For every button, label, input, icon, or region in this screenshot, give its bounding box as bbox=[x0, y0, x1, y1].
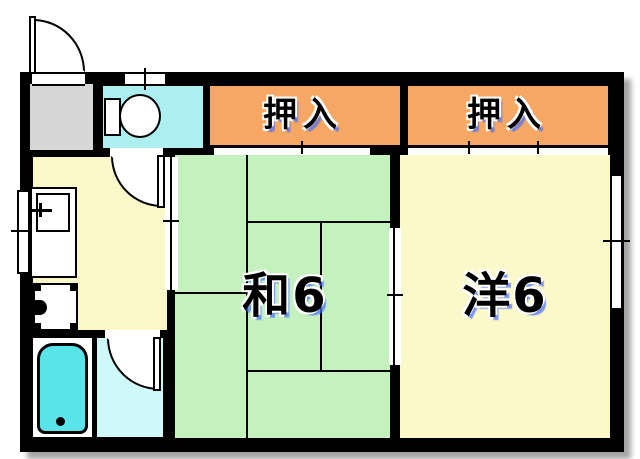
stove-burner-icon bbox=[33, 300, 47, 315]
tatami-western-door-track bbox=[393, 228, 395, 365]
tatami-line-horizontal-2 bbox=[175, 292, 248, 294]
western-room-window-tick bbox=[603, 240, 630, 242]
closet-right-label: 押入 bbox=[467, 98, 547, 132]
kitchen-tatami-door-track bbox=[170, 157, 172, 290]
tatami-western-door bbox=[389, 228, 401, 365]
entry-door-opening bbox=[32, 74, 85, 86]
toilet-door bbox=[157, 155, 165, 208]
closet-right-door-tick-2 bbox=[537, 141, 539, 154]
kitchen-tatami-door-tick bbox=[163, 220, 179, 222]
closet-left-label: 押入 bbox=[263, 98, 343, 132]
toilet-bowl-icon bbox=[119, 94, 161, 138]
kitchen-faucet-tick bbox=[39, 203, 42, 217]
tatami-line-horizontal-1 bbox=[246, 221, 390, 223]
japanese-room-label: 和6 bbox=[242, 272, 327, 320]
entry-floor bbox=[30, 84, 93, 150]
closet-right-door-tick-1 bbox=[468, 141, 470, 154]
entry-door bbox=[29, 16, 36, 74]
stove-corner-4 bbox=[70, 323, 77, 330]
floor-plan: 押入 押入 和6 洋6 bbox=[0, 0, 640, 459]
closet-right-door-track bbox=[408, 146, 608, 148]
stove-corner-2 bbox=[70, 284, 77, 291]
closet-left-door-track bbox=[214, 146, 370, 148]
western-room-window bbox=[610, 174, 623, 310]
western-room-label: 洋6 bbox=[462, 272, 547, 320]
toilet-window-tick bbox=[144, 68, 146, 90]
tatami-line-horizontal-3 bbox=[246, 370, 390, 372]
kitchen-window bbox=[17, 190, 30, 274]
washroom-door bbox=[153, 337, 161, 391]
entry-door-swing bbox=[33, 19, 85, 72]
stove-corner-3 bbox=[34, 323, 41, 330]
stove-corner-1 bbox=[34, 284, 41, 291]
washroom-door-opening bbox=[105, 330, 160, 338]
closet-left-door-tick bbox=[301, 141, 303, 154]
bathtub-drain-icon bbox=[56, 417, 65, 426]
tatami-western-door-tick bbox=[387, 294, 403, 296]
